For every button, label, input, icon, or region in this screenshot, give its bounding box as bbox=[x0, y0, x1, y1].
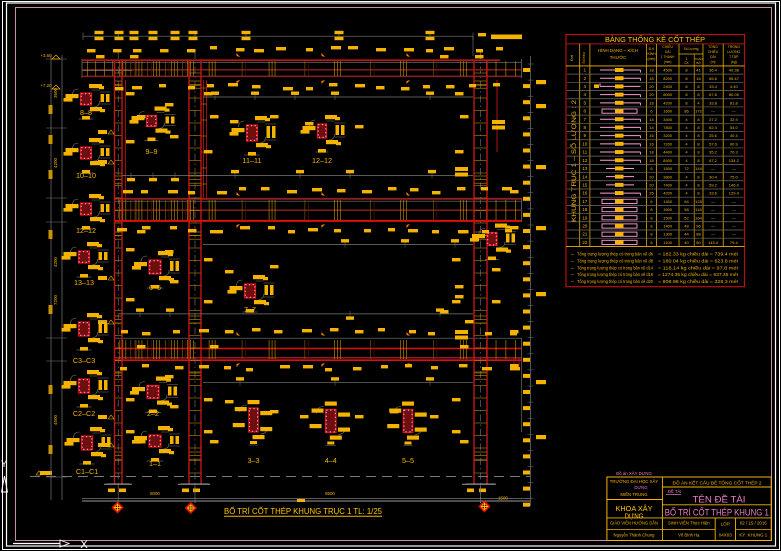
svg-text:18: 18 bbox=[649, 150, 654, 155]
svg-text:C1–C1: C1–C1 bbox=[76, 467, 98, 476]
svg-text:X: X bbox=[80, 539, 88, 551]
svg-text:5: 5 bbox=[583, 100, 586, 105]
svg-text:–: – bbox=[571, 272, 574, 278]
svg-text:72: 72 bbox=[684, 166, 689, 171]
svg-text:21: 21 bbox=[582, 232, 588, 237]
svg-text:—: — bbox=[711, 207, 715, 212]
svg-text:13–13: 13–13 bbox=[74, 278, 94, 287]
svg-text:44: 44 bbox=[684, 232, 689, 237]
svg-text:8000: 8000 bbox=[150, 491, 160, 496]
svg-text:KÝ: KHUNG 1: KÝ: KHUNG 1 bbox=[739, 533, 767, 538]
svg-text:04X03: 04X03 bbox=[719, 533, 733, 538]
svg-text:BẢNG THỐNG KÊ CỐT THÉP: BẢNG THỐNG KÊ CỐT THÉP bbox=[605, 34, 705, 44]
svg-text:–: – bbox=[571, 252, 574, 258]
svg-text:81.8: 81.8 bbox=[730, 100, 739, 105]
svg-text:80.05: 80.05 bbox=[729, 92, 740, 97]
svg-text:19: 19 bbox=[582, 215, 588, 220]
svg-text:BỐ TRÍ CỐT THÉP KHUNG 1: BỐ TRÍ CỐT THÉP KHUNG 1 bbox=[665, 506, 769, 517]
svg-text:18: 18 bbox=[649, 68, 654, 73]
svg-text:—: — bbox=[732, 199, 736, 204]
svg-text:LƯỢNG: LƯỢNG bbox=[727, 50, 740, 54]
svg-text:3: 3 bbox=[583, 84, 586, 89]
svg-text:C2–C2: C2–C2 bbox=[73, 409, 95, 418]
svg-text:(mm): (mm) bbox=[648, 57, 656, 61]
svg-text:T.TẬP: T.TẬP bbox=[729, 55, 739, 59]
svg-text:7400: 7400 bbox=[663, 182, 673, 187]
svg-text:58: 58 bbox=[684, 207, 689, 212]
svg-text:146.0: 146.0 bbox=[729, 182, 740, 187]
svg-text:33.4: 33.4 bbox=[709, 84, 718, 89]
svg-text:4200: 4200 bbox=[53, 157, 58, 168]
svg-text:16: 16 bbox=[582, 191, 588, 196]
svg-text:8000: 8000 bbox=[663, 92, 673, 97]
svg-text:143.4: 143.4 bbox=[708, 240, 719, 245]
svg-text:9: 9 bbox=[583, 133, 586, 138]
svg-text:2: 2 bbox=[583, 76, 586, 81]
svg-text:1100: 1100 bbox=[663, 240, 672, 245]
svg-text:Tổng trọng lượng thép có trong: Tổng trọng lượng thép có trong bản vẽ d1… bbox=[577, 271, 653, 277]
svg-text:= 808.96 kg chiều dài = 328.: = 808.96 kg chiều dài = 328.3 mét bbox=[658, 279, 739, 284]
svg-text:= 180.04 kg chiều dài = 623.: = 180.04 kg chiều dài = 623.8 mét bbox=[658, 258, 739, 263]
svg-text:12: 12 bbox=[582, 158, 588, 163]
svg-text:Đ.K: Đ.K bbox=[649, 47, 655, 51]
svg-text:12–12: 12–12 bbox=[312, 156, 332, 165]
svg-text:02 / 15 / 2016: 02 / 15 / 2016 bbox=[740, 521, 767, 526]
svg-text:11: 11 bbox=[582, 150, 587, 155]
svg-text:—: — bbox=[711, 232, 715, 237]
svg-text:–: – bbox=[571, 279, 574, 285]
svg-text:ĐỒ ÁN KẾT CẤU BÊ TÔNG CỐT THÉP: ĐỒ ÁN KẾT CẤU BÊ TÔNG CỐT THÉP 2 bbox=[673, 481, 763, 486]
svg-text:THƯỚC: THƯỚC bbox=[610, 55, 627, 60]
svg-text:2400: 2400 bbox=[663, 84, 673, 89]
svg-text:Số Lượng: Số Lượng bbox=[684, 47, 699, 51]
svg-text:25: 25 bbox=[649, 191, 654, 196]
svg-text:8–8: 8–8 bbox=[80, 108, 92, 117]
svg-text:Tổng trọng lượng thép có trong: Tổng trọng lượng thép có trong bản vẽ d8 bbox=[577, 257, 653, 263]
svg-text:67.8: 67.8 bbox=[709, 92, 718, 97]
svg-text:(mm): (mm) bbox=[664, 60, 671, 64]
svg-text:1300: 1300 bbox=[663, 232, 673, 237]
svg-text:BỐ TRÍ CỐT THÉP KHUNG TRỤC 1 T: BỐ TRÍ CỐT THÉP KHUNG TRỤC 1 TL: 1/25 bbox=[224, 505, 382, 516]
svg-text:11–11: 11–11 bbox=[243, 156, 262, 165]
svg-text:40: 40 bbox=[684, 240, 689, 245]
svg-text:Đồ án XÂY DỰNG: Đồ án XÂY DỰNG bbox=[616, 471, 652, 476]
svg-text:3400: 3400 bbox=[663, 117, 673, 122]
svg-text:Đợt: Đợt bbox=[570, 55, 574, 61]
svg-text:—: — bbox=[732, 232, 736, 237]
svg-text:= 182.33 kg chiều dài = 739.: = 182.33 kg chiều dài = 739.4 mét bbox=[658, 252, 739, 257]
svg-text:Tổng trọng lượng thép có trong: Tổng trọng lượng thép có trong bản vẽ d2… bbox=[577, 278, 653, 284]
svg-text:75.0: 75.0 bbox=[730, 174, 739, 179]
svg-text:–: – bbox=[571, 258, 574, 264]
svg-text:129.4: 129.4 bbox=[729, 191, 740, 196]
svg-text:18: 18 bbox=[582, 207, 588, 212]
svg-text:CHIỀU: CHIỀU bbox=[708, 49, 719, 54]
svg-text:4400: 4400 bbox=[663, 150, 673, 155]
svg-text:4200: 4200 bbox=[663, 191, 673, 196]
svg-text:104: 104 bbox=[695, 215, 702, 220]
svg-text:TỔNG: TỔNG bbox=[708, 44, 718, 49]
svg-text:DÀI: DÀI bbox=[665, 50, 671, 54]
svg-text:32.9: 32.9 bbox=[730, 117, 739, 122]
svg-text:8200: 8200 bbox=[663, 76, 673, 81]
svg-text:1500: 1500 bbox=[663, 215, 673, 220]
svg-text:20: 20 bbox=[582, 223, 588, 228]
svg-text:4200: 4200 bbox=[663, 100, 673, 105]
svg-text:67.2: 67.2 bbox=[709, 158, 718, 163]
svg-text:7200: 7200 bbox=[53, 294, 58, 305]
svg-text:33.6: 33.6 bbox=[709, 191, 718, 196]
svg-text:13: 13 bbox=[582, 166, 588, 171]
svg-text:TRỌNG: TRỌNG bbox=[728, 45, 741, 49]
svg-text:20: 20 bbox=[649, 92, 654, 97]
svg-text:1 THANH: 1 THANH bbox=[661, 55, 675, 59]
svg-text:62.4: 62.4 bbox=[709, 125, 718, 130]
svg-text:1600: 1600 bbox=[663, 109, 673, 114]
svg-text:20: 20 bbox=[649, 84, 654, 89]
svg-text:64: 64 bbox=[684, 199, 689, 204]
svg-text:172: 172 bbox=[695, 109, 702, 114]
svg-text:—: — bbox=[711, 166, 715, 171]
svg-text:–: – bbox=[571, 265, 574, 271]
svg-text:9–9: 9–9 bbox=[146, 147, 158, 156]
svg-text:79.4: 79.4 bbox=[730, 240, 739, 245]
svg-text:—: — bbox=[732, 207, 736, 212]
svg-text:12–12: 12–12 bbox=[76, 226, 96, 235]
svg-text:1–1: 1–1 bbox=[149, 459, 161, 468]
svg-text:TRƯỜNG ĐẠI HỌC XÂY: TRƯỜNG ĐẠI HỌC XÂY bbox=[610, 479, 659, 484]
svg-text:8400: 8400 bbox=[663, 158, 673, 163]
svg-text:90.9: 90.9 bbox=[730, 141, 739, 146]
svg-text:1500: 1500 bbox=[498, 496, 508, 501]
svg-text:40.4: 40.4 bbox=[730, 133, 739, 138]
svg-text:54.0: 54.0 bbox=[730, 125, 739, 130]
svg-text:DÀI: DÀI bbox=[710, 55, 716, 59]
svg-text:3–3: 3–3 bbox=[248, 456, 260, 465]
svg-text:70.3: 70.3 bbox=[730, 150, 739, 155]
svg-text:65.6: 65.6 bbox=[709, 76, 718, 81]
svg-text:18: 18 bbox=[649, 100, 654, 105]
svg-text:4.40: 4.40 bbox=[730, 84, 739, 89]
svg-text:16: 16 bbox=[696, 76, 701, 81]
svg-text:—: — bbox=[732, 223, 736, 228]
svg-text:DỰNG: DỰNG bbox=[634, 485, 648, 490]
svg-text:4200: 4200 bbox=[53, 256, 58, 267]
svg-text:7800: 7800 bbox=[663, 125, 673, 130]
svg-text:—: — bbox=[732, 215, 736, 220]
svg-text:Tổng trọng lượng thép có trong: Tổng trọng lượng thép có trong bản vẽ d6 bbox=[577, 251, 653, 257]
svg-text:17: 17 bbox=[582, 199, 588, 204]
svg-text:+3.60: +3.60 bbox=[40, 53, 52, 58]
svg-text:CHIỀU: CHIỀU bbox=[662, 44, 673, 49]
svg-text:(kg): (kg) bbox=[731, 60, 737, 64]
svg-text:27.2: 27.2 bbox=[709, 117, 718, 122]
svg-text:25.6: 25.6 bbox=[709, 133, 718, 138]
svg-text:Nguyễn Thành Chung: Nguyễn Thành Chung bbox=[614, 533, 656, 538]
svg-text:14: 14 bbox=[582, 174, 588, 179]
svg-text:GIÁO VIÊN HƯỚNG DẪN: GIÁO VIÊN HƯỚNG DẪN bbox=[610, 521, 658, 526]
svg-text:MIỀN TRUNG: MIỀN TRUNG bbox=[620, 492, 648, 497]
svg-text:86: 86 bbox=[684, 109, 689, 114]
svg-text:5–5: 5–5 bbox=[402, 456, 414, 465]
svg-text:7: 7 bbox=[583, 117, 586, 122]
svg-text:HÌNH DẠNG – KÍCH: HÌNH DẠNG – KÍCH bbox=[598, 48, 638, 53]
svg-text:16: 16 bbox=[649, 133, 654, 138]
svg-text:30.4: 30.4 bbox=[709, 174, 718, 179]
svg-text:4: 4 bbox=[583, 92, 586, 97]
svg-text:33.8: 33.8 bbox=[709, 100, 718, 105]
svg-text:—: — bbox=[711, 223, 715, 228]
svg-text:LỚP: LỚP bbox=[721, 521, 730, 527]
svg-text:20: 20 bbox=[649, 182, 654, 187]
svg-text:16: 16 bbox=[649, 141, 654, 146]
svg-text:7–7: 7–7 bbox=[244, 305, 256, 314]
svg-text:6: 6 bbox=[583, 109, 586, 114]
svg-text:—: — bbox=[711, 215, 715, 220]
svg-text:3200: 3200 bbox=[663, 133, 673, 138]
svg-text:40.38: 40.38 bbox=[729, 68, 740, 73]
svg-text:Tổng trọng lượng thép có trong: Tổng trọng lượng thép có trong bản vẽ d1… bbox=[577, 264, 653, 270]
svg-text:Võ Bình Hạ: Võ Bình Hạ bbox=[678, 533, 700, 538]
svg-text:= 118.14 kg chiều dài = 97.8: = 118.14 kg chiều dài = 97.8 mét bbox=[658, 265, 739, 270]
svg-text:144: 144 bbox=[695, 166, 702, 171]
svg-text:18: 18 bbox=[649, 158, 654, 163]
svg-text:4500: 4500 bbox=[53, 414, 58, 425]
svg-text:3800: 3800 bbox=[663, 174, 673, 179]
svg-text:1500: 1500 bbox=[663, 166, 673, 171]
svg-text:128: 128 bbox=[695, 199, 702, 204]
svg-text:+7.20: +7.20 bbox=[40, 83, 52, 88]
svg-text:Y: Y bbox=[1, 459, 7, 469]
svg-text:—: — bbox=[711, 109, 715, 114]
svg-text:2–2: 2–2 bbox=[147, 409, 159, 418]
svg-text:57.6: 57.6 bbox=[709, 141, 718, 146]
svg-text:48: 48 bbox=[684, 223, 689, 228]
svg-text:22: 22 bbox=[582, 240, 588, 245]
svg-text:ĐỀ TÀI: ĐỀ TÀI bbox=[668, 489, 681, 494]
svg-text:20: 20 bbox=[649, 174, 654, 179]
svg-text:DỰNG: DỰNG bbox=[625, 512, 644, 521]
svg-text:—: — bbox=[711, 199, 715, 204]
svg-text:88: 88 bbox=[696, 232, 701, 237]
svg-text:96: 96 bbox=[696, 223, 701, 228]
svg-text:BỘ: BỘ bbox=[696, 60, 701, 65]
svg-text:134.2: 134.2 bbox=[729, 158, 740, 163]
svg-text:15: 15 bbox=[582, 182, 588, 187]
svg-text:6–6: 6–6 bbox=[149, 283, 161, 292]
svg-text:—: — bbox=[732, 166, 736, 171]
svg-text:1400: 1400 bbox=[663, 199, 673, 204]
svg-text:SINH VIÊN Thực Hiện: SINH VIÊN Thực Hiện bbox=[668, 521, 710, 526]
svg-text:1600: 1600 bbox=[663, 207, 673, 212]
svg-text:18: 18 bbox=[649, 76, 654, 81]
svg-text:8500: 8500 bbox=[325, 491, 335, 496]
svg-text:1400: 1400 bbox=[663, 223, 673, 228]
svg-text:7200: 7200 bbox=[663, 141, 673, 146]
svg-text:80: 80 bbox=[696, 240, 701, 245]
svg-text:(m): (m) bbox=[710, 60, 715, 64]
svg-text:KÍNH: KÍNH bbox=[647, 52, 656, 56]
svg-text:10: 10 bbox=[582, 141, 588, 146]
svg-text:52: 52 bbox=[684, 215, 689, 220]
svg-text:14: 14 bbox=[649, 125, 654, 130]
svg-text:35.2: 35.2 bbox=[709, 150, 718, 155]
svg-text:Số hiệu: Số hiệu bbox=[582, 52, 586, 63]
svg-text:1: 1 bbox=[583, 68, 586, 73]
svg-text:4500: 4500 bbox=[663, 68, 673, 73]
svg-text:10–10: 10–10 bbox=[76, 171, 96, 180]
svg-text:116: 116 bbox=[695, 207, 702, 212]
svg-text:8: 8 bbox=[583, 125, 586, 130]
svg-text:41: 41 bbox=[696, 68, 701, 73]
svg-text:59.2: 59.2 bbox=[709, 182, 718, 187]
svg-text:= 1274.35 kg chiều dài = 637: = 1274.35 kg chiều dài = 637.35 mét bbox=[658, 272, 739, 277]
svg-text:4–4: 4–4 bbox=[325, 456, 337, 465]
svg-text:TÊN ĐỀ TÀI: TÊN ĐỀ TÀI bbox=[693, 495, 746, 505]
svg-text:C3–C3: C3–C3 bbox=[73, 356, 95, 365]
svg-text:14: 14 bbox=[649, 117, 654, 122]
svg-text:—: — bbox=[732, 109, 736, 114]
svg-text:36.4: 36.4 bbox=[709, 68, 718, 73]
svg-text:95.47: 95.47 bbox=[729, 76, 740, 81]
